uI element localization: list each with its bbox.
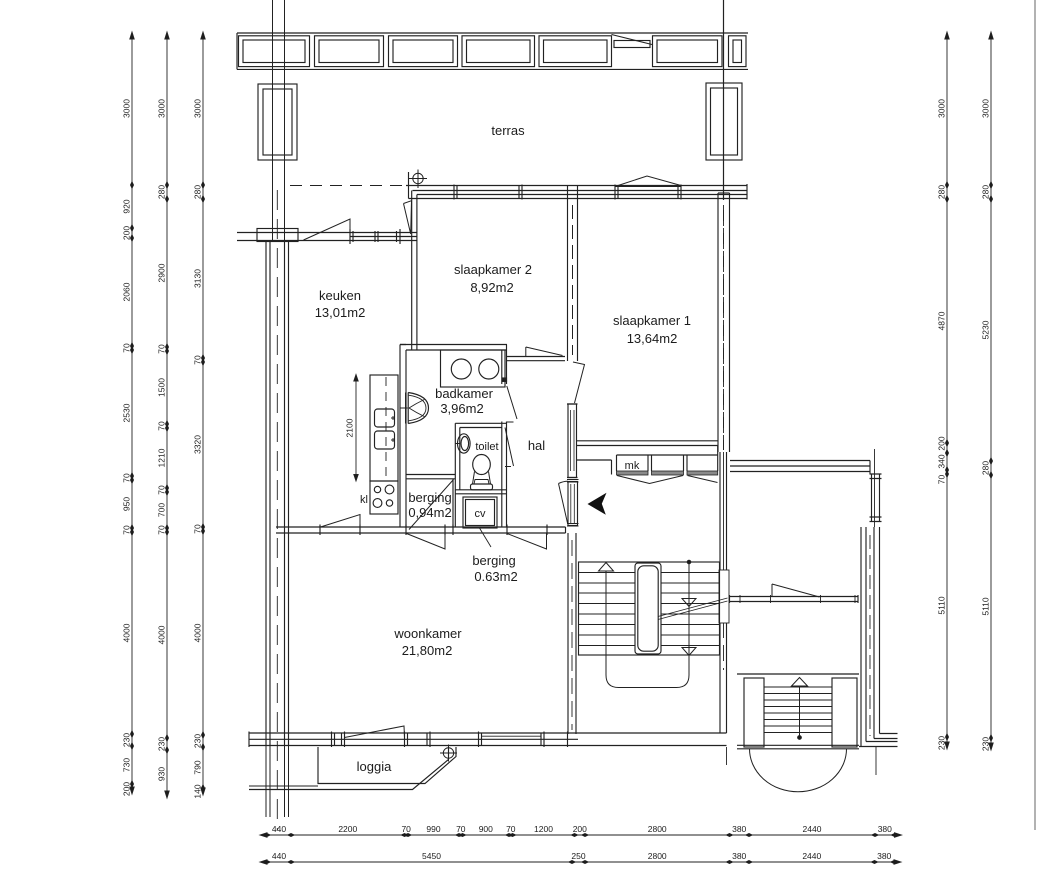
svg-text:70: 70 <box>193 355 203 365</box>
svg-text:790: 790 <box>193 760 203 774</box>
svg-text:4000: 4000 <box>157 625 167 644</box>
svg-text:200: 200 <box>122 226 132 240</box>
svg-text:2060: 2060 <box>122 282 132 301</box>
svg-text:280: 280 <box>193 185 203 199</box>
svg-text:2530: 2530 <box>122 403 132 422</box>
svg-text:2100: 2100 <box>345 418 355 437</box>
svg-text:70: 70 <box>122 343 132 353</box>
svg-text:5450: 5450 <box>422 851 441 861</box>
svg-text:mk: mk <box>625 460 640 472</box>
svg-text:70: 70 <box>122 525 132 535</box>
svg-text:2440: 2440 <box>803 824 822 834</box>
svg-text:badkamer: badkamer <box>435 386 493 401</box>
svg-text:70: 70 <box>937 475 947 485</box>
svg-text:slaapkamer 1: slaapkamer 1 <box>613 313 691 328</box>
svg-text:slaapkamer 2: slaapkamer 2 <box>454 262 532 277</box>
svg-text:230: 230 <box>157 737 167 751</box>
svg-text:950: 950 <box>122 497 132 511</box>
svg-text:200: 200 <box>937 436 947 450</box>
svg-text:3000: 3000 <box>193 99 203 118</box>
svg-text:woonkamer: woonkamer <box>393 626 462 641</box>
svg-text:900: 900 <box>479 824 493 834</box>
svg-text:380: 380 <box>877 851 891 861</box>
svg-text:loggia: loggia <box>357 759 392 774</box>
svg-text:4000: 4000 <box>193 623 203 642</box>
svg-text:920: 920 <box>122 199 132 213</box>
svg-text:230: 230 <box>193 734 203 748</box>
svg-text:4870: 4870 <box>937 311 947 330</box>
svg-text:2440: 2440 <box>802 851 821 861</box>
svg-text:380: 380 <box>732 824 746 834</box>
svg-text:3130: 3130 <box>193 269 203 288</box>
svg-text:280: 280 <box>937 185 947 199</box>
svg-text:990: 990 <box>426 824 440 834</box>
svg-text:keuken: keuken <box>319 288 361 303</box>
svg-text:230: 230 <box>122 733 132 747</box>
svg-text:13,01m2: 13,01m2 <box>315 305 366 320</box>
svg-text:200: 200 <box>122 782 132 796</box>
svg-text:terras: terras <box>491 123 525 138</box>
svg-text:21,80m2: 21,80m2 <box>402 643 453 658</box>
svg-text:3000: 3000 <box>122 99 132 118</box>
svg-text:140: 140 <box>193 784 203 798</box>
svg-text:3000: 3000 <box>981 99 991 118</box>
svg-text:4000: 4000 <box>122 623 132 642</box>
svg-text:340: 340 <box>937 454 947 468</box>
svg-text:hal: hal <box>528 438 545 453</box>
svg-text:200: 200 <box>573 824 587 834</box>
svg-text:70: 70 <box>157 525 167 535</box>
svg-text:toilet: toilet <box>475 441 498 453</box>
svg-text:250: 250 <box>571 851 585 861</box>
svg-text:70: 70 <box>193 524 203 534</box>
svg-text:280: 280 <box>157 185 167 199</box>
svg-text:230: 230 <box>981 737 991 751</box>
svg-text:380: 380 <box>878 824 892 834</box>
svg-text:13,64m2: 13,64m2 <box>627 331 678 346</box>
svg-text:230: 230 <box>937 736 947 750</box>
svg-text:2900: 2900 <box>157 263 167 282</box>
svg-text:70: 70 <box>401 824 411 834</box>
svg-text:1210: 1210 <box>157 448 167 467</box>
svg-text:berging: berging <box>408 490 451 505</box>
svg-text:70: 70 <box>456 824 466 834</box>
svg-text:1200: 1200 <box>534 824 553 834</box>
svg-text:930: 930 <box>157 767 167 781</box>
svg-text:1500: 1500 <box>157 378 167 397</box>
svg-text:380: 380 <box>732 851 746 861</box>
svg-text:280: 280 <box>981 461 991 475</box>
svg-text:2200: 2200 <box>338 824 357 834</box>
svg-text:0,94m2: 0,94m2 <box>408 505 451 520</box>
svg-text:5110: 5110 <box>937 596 947 615</box>
svg-text:700: 700 <box>157 503 167 517</box>
svg-text:440: 440 <box>272 824 286 834</box>
svg-text:730: 730 <box>122 758 132 772</box>
svg-text:70: 70 <box>157 485 167 495</box>
svg-text:cv: cv <box>475 508 487 520</box>
svg-text:5110: 5110 <box>981 597 991 616</box>
svg-text:3320: 3320 <box>193 435 203 454</box>
svg-text:70: 70 <box>157 344 167 354</box>
svg-text:70: 70 <box>506 824 516 834</box>
svg-text:5230: 5230 <box>981 320 991 339</box>
svg-text:2800: 2800 <box>648 851 667 861</box>
svg-text:kl: kl <box>360 494 368 506</box>
svg-text:280: 280 <box>981 185 991 199</box>
svg-text:70: 70 <box>122 473 132 483</box>
svg-text:2800: 2800 <box>648 824 667 834</box>
svg-text:3000: 3000 <box>937 99 947 118</box>
svg-text:3000: 3000 <box>157 99 167 118</box>
svg-text:berging: berging <box>472 553 515 568</box>
svg-text:0.63m2: 0.63m2 <box>474 569 517 584</box>
svg-text:8,92m2: 8,92m2 <box>470 280 513 295</box>
svg-text:3,96m2: 3,96m2 <box>440 401 483 416</box>
svg-text:440: 440 <box>272 851 286 861</box>
svg-text:70: 70 <box>157 421 167 431</box>
